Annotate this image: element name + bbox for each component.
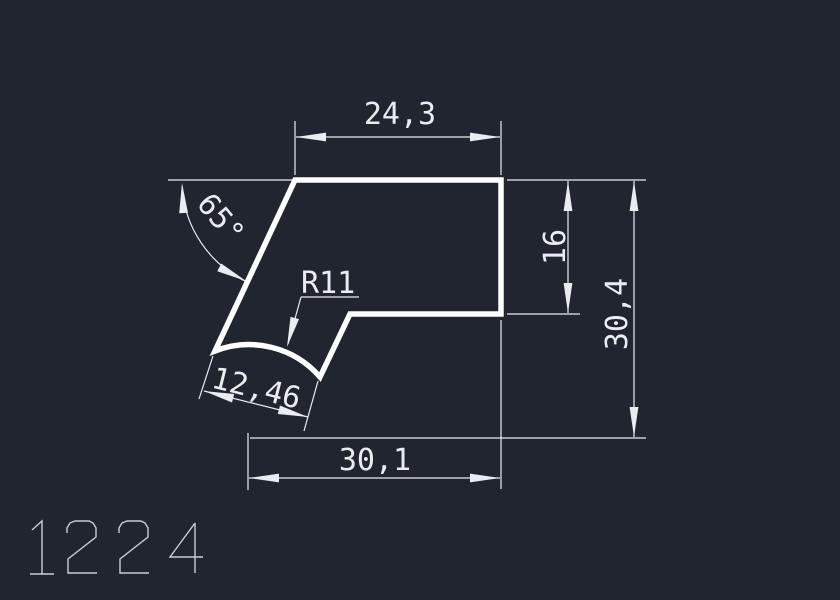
dim-overall-height-label: 30,4 [600, 278, 635, 350]
canvas-background [0, 0, 840, 600]
dim-top-width-label: 24,3 [364, 97, 436, 132]
cad-canvas[interactable]: 1224 [0, 0, 840, 600]
dim-step-height-label: 16 [538, 229, 573, 265]
cad-drawing: 24,3 65° R11 12,46 30,1 16 30,4 [0, 0, 840, 600]
dim-radius-label: R11 [301, 266, 355, 301]
dim-bottom-width-label: 30,1 [339, 443, 411, 478]
